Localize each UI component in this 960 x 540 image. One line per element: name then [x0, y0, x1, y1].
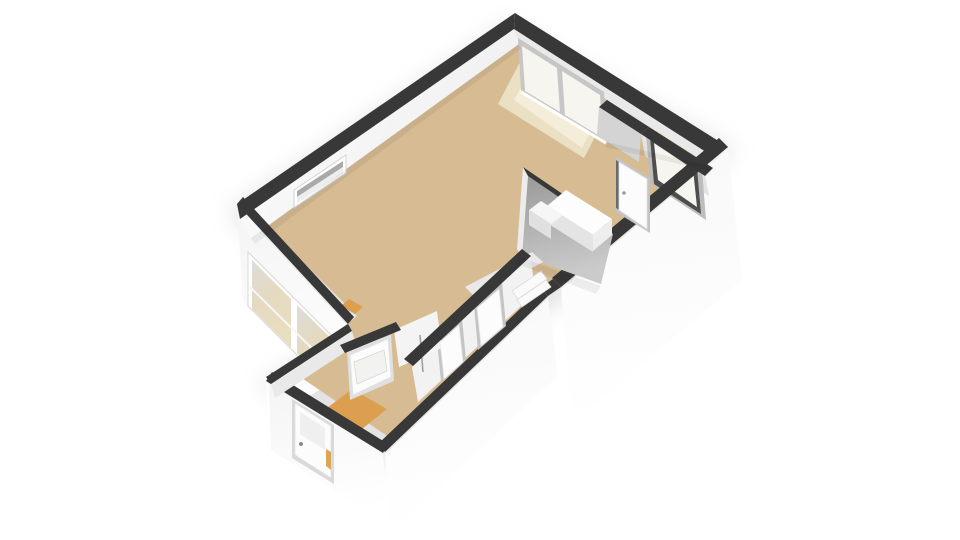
door-gap	[616, 160, 619, 210]
floorplan-canvas	[0, 0, 960, 540]
door-handle	[622, 191, 626, 195]
front-door-handle	[299, 442, 303, 446]
floorplan-3d-render	[0, 0, 960, 540]
